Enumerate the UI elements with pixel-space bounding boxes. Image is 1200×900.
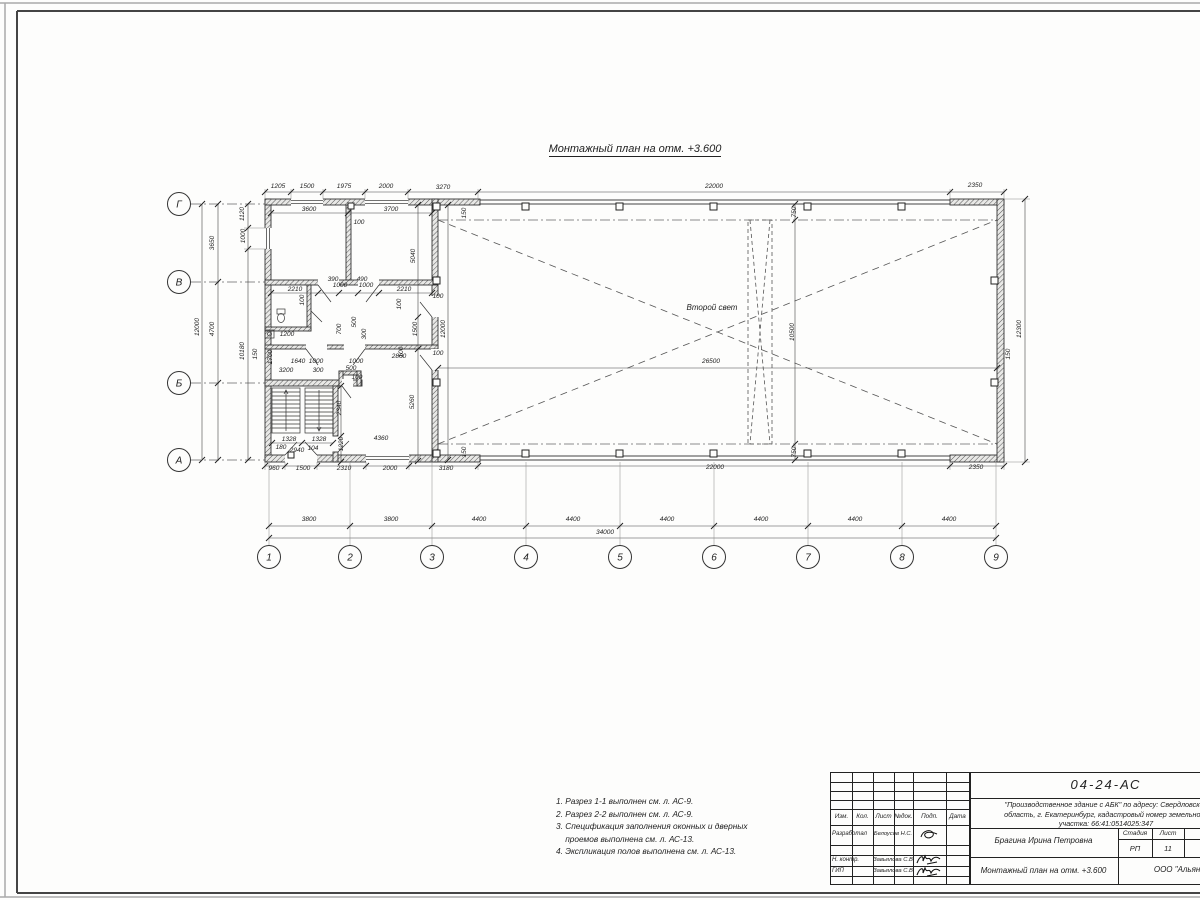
dim-label: 500 xyxy=(351,316,358,327)
dim-label: 4400 xyxy=(660,516,675,523)
extension-lines xyxy=(244,189,1030,546)
dim-label: 300 xyxy=(361,328,368,339)
dim-label: 1640 xyxy=(291,358,306,365)
dim-label: 3800 xyxy=(384,516,399,523)
dim-label: 3200 xyxy=(279,367,294,374)
dim-label: 100 xyxy=(352,374,363,381)
dim-label: 2310 xyxy=(336,465,352,472)
sheet-header: Лист xyxy=(1152,830,1184,837)
axis-bubble-label: В xyxy=(176,278,183,289)
col-data: Дата xyxy=(946,813,969,820)
hall-walls xyxy=(480,200,950,460)
col-podp: Подп. xyxy=(913,813,946,820)
dim-label: 3650 xyxy=(209,235,216,250)
dim-label: 2000 xyxy=(382,465,398,472)
dim-label: 12000 xyxy=(440,320,447,338)
dim-label: 1328 xyxy=(282,436,297,443)
dim-label: 26500 xyxy=(701,358,720,365)
staircase xyxy=(272,388,333,433)
dim-label: 960 xyxy=(269,465,280,472)
axis-bubble-label: 6 xyxy=(711,553,717,564)
dim-label: 34000 xyxy=(596,529,614,536)
axis-bubble-label: 5 xyxy=(617,553,623,564)
dim-label: 1500 xyxy=(412,321,419,336)
dim-label: 1220 xyxy=(338,436,345,451)
axis-bubble-label: Б xyxy=(176,379,183,390)
dim-label: 2350 xyxy=(968,464,984,471)
dim-label: 100 xyxy=(433,293,444,300)
doc-number: 04-24-АС xyxy=(969,777,1200,792)
role-ncontrol: Н. контр. xyxy=(832,857,876,863)
walls-hatched xyxy=(265,199,1004,462)
dim-label: 2210 xyxy=(396,286,412,293)
company-name: ООО "Альянс" xyxy=(1118,865,1200,874)
dim-label: 1000 xyxy=(240,228,247,243)
dim-label: 150 xyxy=(461,207,468,218)
sheets-value: 13 xyxy=(1184,844,1200,853)
stamp-sheet-title: Монтажный план на отм. +3.600 xyxy=(969,866,1118,875)
role-developed: Разработал xyxy=(832,831,876,837)
dim-label: 2350 xyxy=(967,182,983,189)
axis-bubble-label: 9 xyxy=(993,553,999,564)
drawing-sheet: { "drawing_title": "Монтажный план на от… xyxy=(0,0,1200,900)
name-gip: Завьялова С.В xyxy=(873,868,913,874)
axis-bubble-label: 8 xyxy=(899,553,905,564)
stage-value: РП xyxy=(1118,844,1152,853)
dim-label: 4400 xyxy=(472,516,487,523)
dim-label: 12000 xyxy=(194,318,201,336)
dim-label: 104 xyxy=(308,445,319,452)
dim-label: 1200 xyxy=(280,331,295,338)
dimension-lines xyxy=(202,192,1025,538)
dim-label: 2940 xyxy=(289,447,305,454)
axis-bubble-label: Г xyxy=(176,200,183,211)
dimension-ticks xyxy=(199,189,1028,541)
dim-label: 100 xyxy=(433,350,444,357)
dim-label: 1000 xyxy=(349,358,364,365)
axis-bubble-label: 7 xyxy=(805,553,811,564)
author-name: Брагина Ирина Петровна xyxy=(969,836,1118,845)
dim-label: 3180 xyxy=(439,465,454,472)
dim-label: 100 xyxy=(396,298,403,309)
dim-label: 1975 xyxy=(337,183,352,190)
dim-label: 1000 xyxy=(309,358,324,365)
dim-label: 12300 xyxy=(1016,320,1023,338)
dim-label: 3800 xyxy=(302,516,317,523)
dim-label: 22000 xyxy=(704,183,723,190)
dim-label: 1500 xyxy=(296,465,311,472)
dim-label: 150 xyxy=(461,446,468,457)
dimension-labels: 1205150019752000327022000235036003700100… xyxy=(194,182,1023,536)
sheets-header: Листов xyxy=(1184,830,1200,837)
dim-label: 5040 xyxy=(410,248,417,263)
dim-label: 500 xyxy=(346,365,357,372)
axis-bubble-label: А xyxy=(175,456,183,467)
dim-label: 1000 xyxy=(333,282,348,289)
sheet-value: 11 xyxy=(1152,844,1184,853)
dim-label: 4400 xyxy=(848,516,863,523)
dim-label: 3700 xyxy=(384,206,399,213)
dim-label: 22000 xyxy=(705,464,724,471)
axis-bubble-label: 4 xyxy=(523,553,529,564)
role-gip: ГИП xyxy=(832,868,876,874)
dim-label: 4400 xyxy=(566,516,581,523)
axis-bubble-label: 1 xyxy=(266,553,272,564)
second-light-label: Второй свет xyxy=(687,303,738,312)
dim-label: 10500 xyxy=(789,323,796,341)
signature-gip xyxy=(915,865,943,879)
dim-label: 1500 xyxy=(300,183,315,190)
dim-label: 4360 xyxy=(374,435,389,442)
dim-label: 1328 xyxy=(312,436,327,443)
dim-label: 5260 xyxy=(409,394,416,409)
col-izm: Изм. xyxy=(831,813,852,820)
dim-label: 1205 xyxy=(271,183,286,190)
dim-label: 3270 xyxy=(436,184,451,191)
col-kol: Кол. xyxy=(852,813,873,820)
roof-band-dashed xyxy=(748,220,772,444)
dim-label: 4400 xyxy=(942,516,957,523)
drawing-title: Монтажный план на отм. +3.600 xyxy=(530,143,740,155)
dim-label: 3600 xyxy=(302,206,317,213)
axis-bubble-label: 2 xyxy=(346,553,353,564)
dim-label: 700 xyxy=(336,323,343,334)
project-line-2: область, г. Екатеринбург, кадастровый но… xyxy=(969,810,1200,819)
dim-label: 1120 xyxy=(239,207,246,221)
signature-developed xyxy=(917,827,943,843)
dim-label: 4400 xyxy=(754,516,769,523)
dim-label: 300 xyxy=(313,367,324,374)
notes-list: 1. Разрез 1-1 выполнен см. л. АС-9. 2. Р… xyxy=(556,795,806,858)
structural-columns xyxy=(288,203,998,458)
dim-label: 100 xyxy=(354,219,365,226)
dim-label: 10180 xyxy=(239,342,246,360)
project-line-1: "Производственное здание с АБК" по адрес… xyxy=(969,800,1200,809)
title-block: Изм. Кол. Лист №док. Подп. Дата Разработ… xyxy=(830,772,1200,885)
dim-label: 100 xyxy=(299,294,306,305)
axis-lines xyxy=(191,204,1004,460)
col-list: Лист xyxy=(873,813,894,820)
sheet-frame xyxy=(0,3,1200,897)
dim-label: 1700 xyxy=(267,349,274,364)
name-ncontrol: Завьялова С.В xyxy=(873,857,913,863)
project-line-3: участка: 66:41:0514025:347 xyxy=(969,819,1200,828)
dim-label: 150 xyxy=(1005,348,1012,359)
stage-header: Стадия xyxy=(1118,830,1152,837)
dim-label: 2210 xyxy=(287,286,303,293)
name-developed: Белоусов Н.С. xyxy=(873,831,913,837)
dim-label: 1000 xyxy=(359,282,374,289)
void-cross-dashed xyxy=(438,220,997,444)
dim-label: 2340 xyxy=(336,400,343,416)
dim-label: 100 xyxy=(398,346,405,357)
dim-label: 750 xyxy=(791,446,798,457)
dim-label: 180 xyxy=(276,444,287,451)
axis-bubble-label: 3 xyxy=(429,553,435,564)
col-ndok: №док. xyxy=(894,813,913,820)
dim-label: 4700 xyxy=(209,321,216,336)
dim-label: 2000 xyxy=(378,183,394,190)
dim-label: 150 xyxy=(252,348,259,359)
dim-label: 750 xyxy=(791,206,798,217)
floor-plan-svg: ГВБА123456789 12051500197520003270220002… xyxy=(0,0,1200,900)
